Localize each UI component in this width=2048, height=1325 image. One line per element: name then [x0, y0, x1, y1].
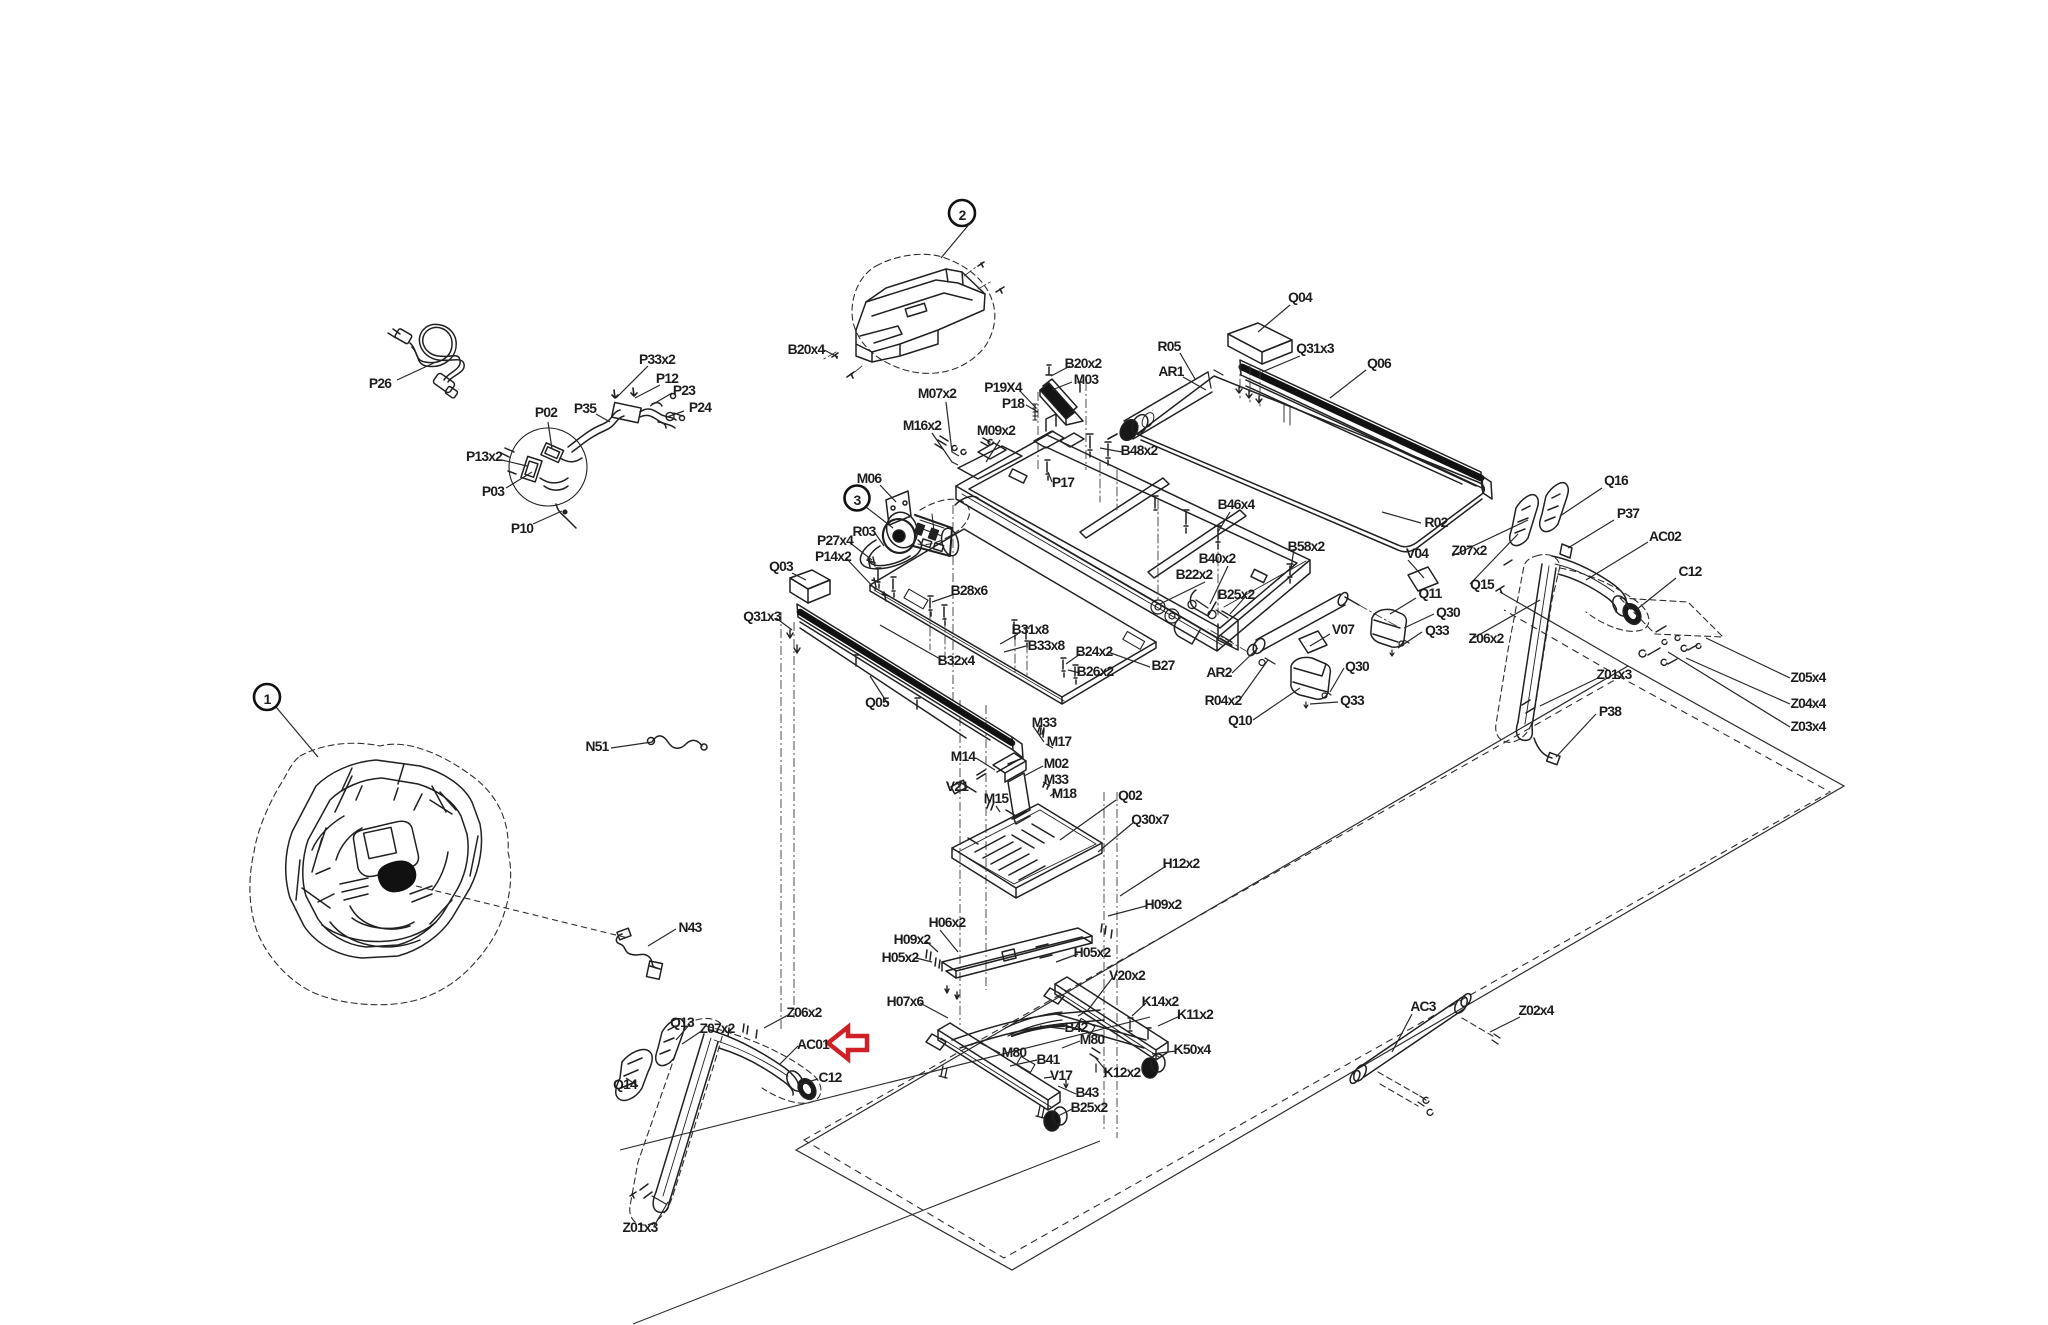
svg-text:V17: V17: [1050, 1068, 1073, 1083]
svg-text:AC3: AC3: [1410, 999, 1436, 1014]
svg-text:AC01: AC01: [797, 1037, 830, 1052]
svg-text:B40x2: B40x2: [1199, 551, 1237, 566]
svg-text:Z04x4: Z04x4: [1790, 696, 1826, 711]
svg-text:H05x2: H05x2: [1074, 945, 1112, 960]
svg-text:B20x2: B20x2: [1065, 356, 1103, 371]
svg-text:V21: V21: [946, 779, 969, 794]
svg-text:V04: V04: [1406, 546, 1429, 561]
svg-text:Q02: Q02: [1118, 788, 1143, 803]
svg-text:AR2: AR2: [1206, 665, 1232, 680]
svg-text:B26x2: B26x2: [1077, 664, 1115, 679]
svg-text:M06: M06: [857, 471, 883, 486]
svg-text:N43: N43: [679, 920, 703, 935]
svg-text:Z01x3: Z01x3: [622, 1220, 658, 1235]
svg-text:R04x2: R04x2: [1205, 693, 1243, 708]
svg-text:P02: P02: [535, 405, 558, 420]
svg-text:P18: P18: [1002, 396, 1025, 411]
svg-text:Q13: Q13: [670, 1015, 695, 1030]
svg-text:K11x2: K11x2: [1177, 1007, 1214, 1022]
svg-text:Q16: Q16: [1604, 473, 1629, 488]
svg-text:K14x2: K14x2: [1142, 994, 1180, 1009]
svg-text:P23: P23: [673, 383, 696, 398]
svg-text:B48x2: B48x2: [1121, 443, 1159, 458]
svg-text:N51: N51: [586, 739, 610, 754]
svg-text:P37: P37: [1617, 506, 1640, 521]
svg-text:P17: P17: [1052, 475, 1075, 490]
svg-text:Q05: Q05: [865, 695, 890, 710]
svg-text:M09x2: M09x2: [977, 423, 1016, 438]
svg-text:Z01x3: Z01x3: [1596, 667, 1632, 682]
svg-text:Q33: Q33: [1340, 693, 1365, 708]
svg-text:B27: B27: [1152, 658, 1176, 673]
svg-text:Q15: Q15: [1470, 577, 1495, 592]
svg-text:B28x6: B28x6: [951, 583, 989, 598]
svg-text:M80: M80: [1080, 1032, 1106, 1047]
svg-text:M33: M33: [1044, 772, 1070, 787]
svg-text:AR1: AR1: [1158, 364, 1184, 379]
svg-text:Q31x3: Q31x3: [1296, 341, 1335, 356]
svg-text:V20x2: V20x2: [1109, 968, 1146, 983]
svg-text:H09x2: H09x2: [894, 932, 932, 947]
svg-text:B20x4: B20x4: [788, 342, 826, 357]
svg-text:K12x2: K12x2: [1104, 1065, 1142, 1080]
svg-text:Q30: Q30: [1345, 659, 1370, 674]
svg-text:Q14: Q14: [613, 1077, 638, 1092]
svg-text:Z06x2: Z06x2: [786, 1005, 822, 1020]
svg-text:M16x2: M16x2: [903, 418, 942, 433]
svg-text:B33x8: B33x8: [1028, 638, 1066, 653]
svg-text:B46x4: B46x4: [1218, 497, 1256, 512]
svg-text:H05x2: H05x2: [882, 950, 920, 965]
svg-text:Z07x2: Z07x2: [1451, 543, 1487, 558]
svg-text:V07: V07: [1332, 622, 1355, 637]
svg-text:Z06x2: Z06x2: [1468, 631, 1504, 646]
svg-text:K50x4: K50x4: [1174, 1042, 1212, 1057]
svg-text:Z05x4: Z05x4: [1790, 670, 1826, 685]
svg-text:P27x4: P27x4: [817, 533, 854, 548]
svg-text:C12: C12: [1679, 564, 1703, 579]
svg-text:Q30x7: Q30x7: [1131, 812, 1170, 827]
svg-text:M17: M17: [1047, 734, 1073, 749]
svg-text:C12: C12: [819, 1070, 843, 1085]
svg-text:P26: P26: [369, 376, 392, 391]
svg-text:Q31x3: Q31x3: [743, 609, 782, 624]
svg-text:M15: M15: [984, 791, 1010, 806]
svg-text:AC02: AC02: [1649, 529, 1682, 544]
svg-text:P33x2: P33x2: [639, 352, 676, 367]
svg-text:H06x2: H06x2: [929, 915, 967, 930]
svg-text:M80: M80: [1002, 1045, 1028, 1060]
svg-text:Q30: Q30: [1436, 605, 1461, 620]
svg-text:Q03: Q03: [769, 559, 794, 574]
svg-text:P38: P38: [1599, 704, 1622, 719]
svg-text:R05: R05: [1158, 339, 1182, 354]
svg-text:B41: B41: [1037, 1052, 1061, 1067]
svg-text:Q11: Q11: [1419, 586, 1443, 601]
svg-text:P03: P03: [482, 484, 505, 499]
svg-text:B22x2: B22x2: [1176, 567, 1214, 582]
svg-text:Z02x4: Z02x4: [1518, 1003, 1554, 1018]
svg-text:P35: P35: [574, 401, 597, 416]
svg-text:B43: B43: [1076, 1085, 1100, 1100]
svg-text:M14: M14: [951, 749, 977, 764]
svg-text:3: 3: [854, 493, 862, 508]
svg-text:R03: R03: [853, 524, 877, 539]
svg-text:Z03x4: Z03x4: [1790, 719, 1826, 734]
svg-text:M02: M02: [1044, 756, 1070, 771]
svg-text:M33: M33: [1032, 715, 1058, 730]
svg-text:B32x4: B32x4: [938, 653, 976, 668]
svg-text:Q04: Q04: [1288, 290, 1313, 305]
svg-text:1: 1: [264, 692, 272, 707]
svg-text:B25x2: B25x2: [1071, 1100, 1109, 1115]
svg-text:P13x2: P13x2: [466, 449, 503, 464]
svg-text:H09x2: H09x2: [1145, 897, 1183, 912]
svg-text:P24: P24: [689, 400, 712, 415]
svg-text:B25x2: B25x2: [1218, 587, 1256, 602]
svg-text:Q33: Q33: [1425, 623, 1450, 638]
svg-text:R02: R02: [1425, 515, 1449, 530]
svg-text:B24x2: B24x2: [1076, 644, 1114, 659]
svg-text:H07x6: H07x6: [887, 994, 925, 1009]
svg-text:M18: M18: [1052, 786, 1078, 801]
svg-text:Z07x2: Z07x2: [699, 1021, 735, 1036]
svg-text:P10: P10: [511, 521, 534, 536]
svg-text:2: 2: [959, 208, 967, 223]
svg-text:Q06: Q06: [1367, 356, 1392, 371]
svg-text:M07x2: M07x2: [918, 386, 957, 401]
svg-text:P14x2: P14x2: [815, 549, 852, 564]
svg-text:B31x8: B31x8: [1012, 622, 1050, 637]
svg-text:H12x2: H12x2: [1163, 856, 1201, 871]
svg-text:Q10: Q10: [1228, 713, 1253, 728]
svg-text:M03: M03: [1074, 372, 1100, 387]
svg-text:P19X4: P19X4: [984, 380, 1023, 395]
svg-text:B58x2: B58x2: [1288, 539, 1326, 554]
